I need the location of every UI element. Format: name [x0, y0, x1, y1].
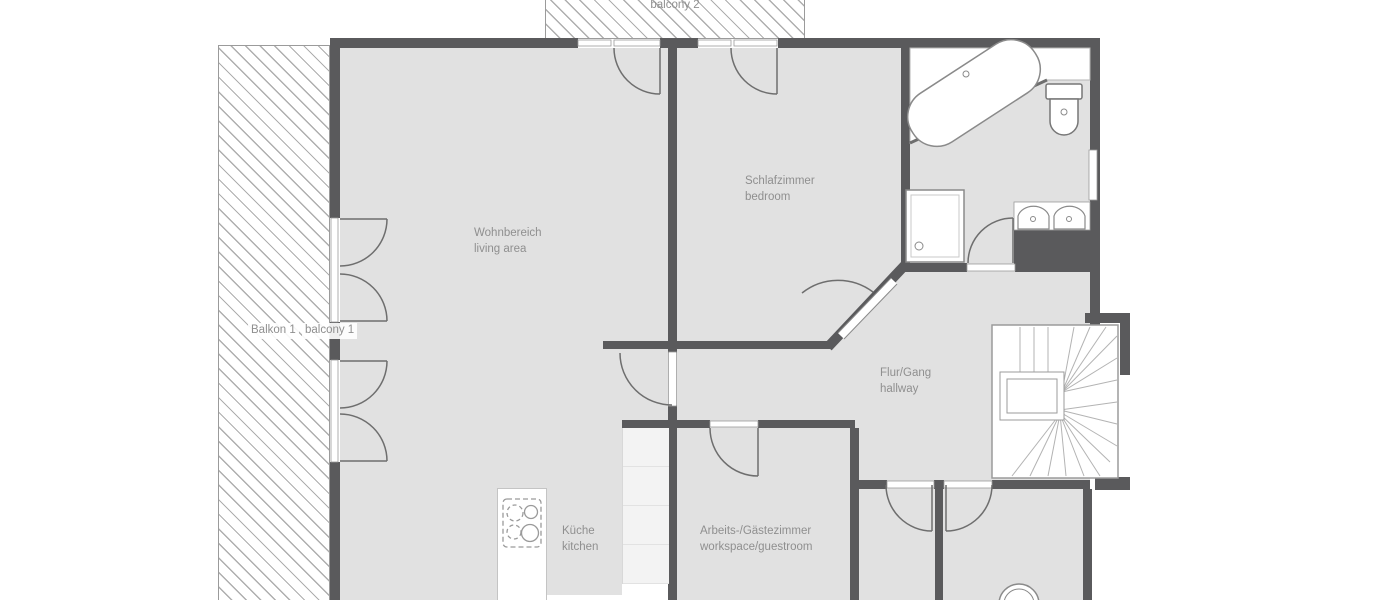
room-label-living: Wohnbereich living area	[474, 226, 542, 257]
double-washbasin-icon	[1014, 202, 1090, 230]
toilet-icon	[1046, 84, 1082, 135]
stove-icon	[503, 499, 541, 547]
shower-icon	[906, 190, 964, 262]
staircase	[992, 325, 1118, 478]
room-label-kitchen: Küche kitchen	[562, 524, 598, 555]
room-label-balcony-1: Balkon 1 balcony 1	[248, 323, 357, 339]
room-label-workspace: Arbeits-/Gästezimmer workspace/guestroom	[700, 524, 813, 555]
window	[1089, 150, 1097, 200]
room-label-hallway: Flur/Gang hallway	[880, 366, 931, 397]
washing-machine-icon	[999, 584, 1039, 600]
room-label-balcony-2: balcony 2	[595, 0, 755, 14]
floor-plan: balcony 2 Balkon 1 balcony 1 Wohnbereich…	[0, 0, 1400, 600]
room-label-bedroom: Schlafzimmer bedroom	[745, 174, 815, 205]
fixtures-layer	[0, 0, 1400, 600]
diagonal-wall	[828, 264, 906, 347]
